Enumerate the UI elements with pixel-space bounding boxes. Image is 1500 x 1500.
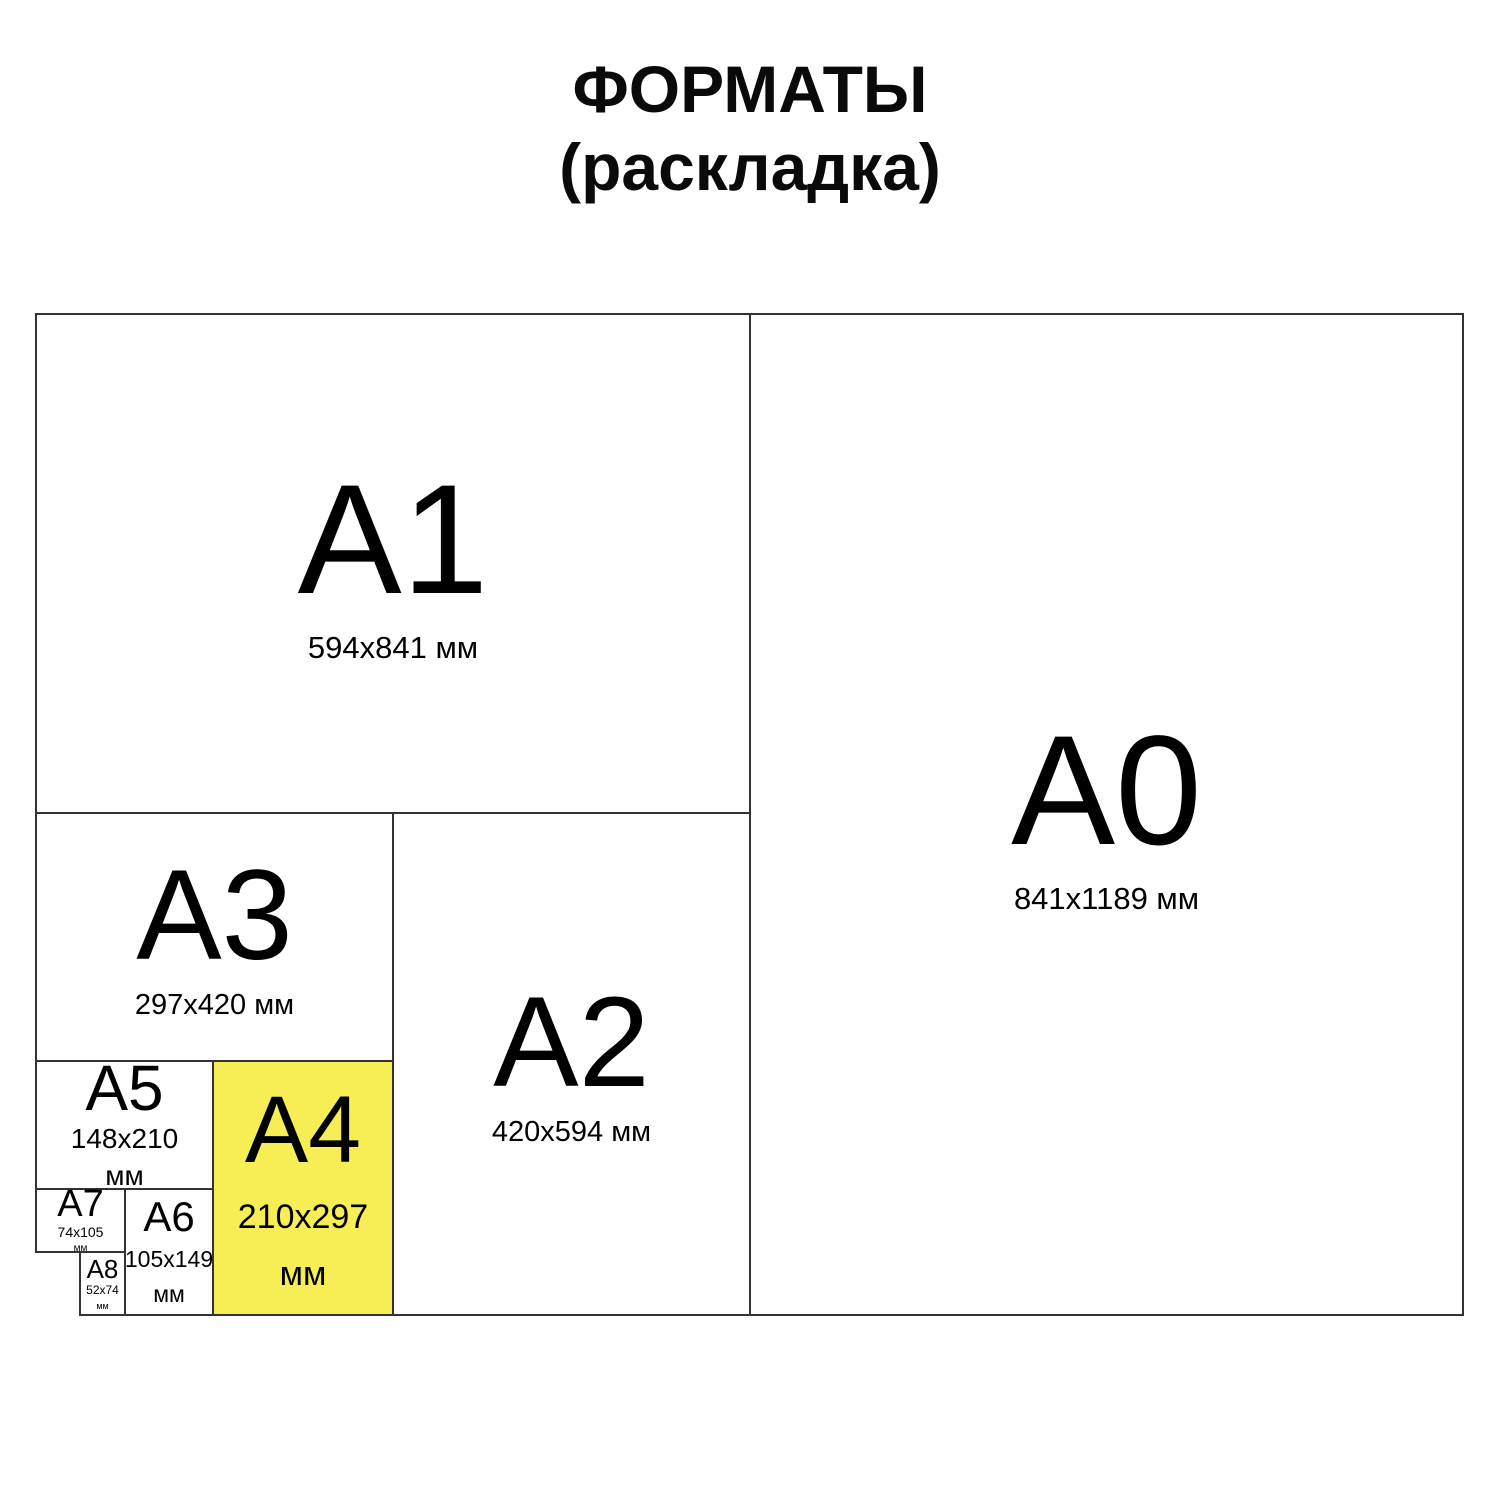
sheet-a7: A7 74x105 мм (35, 1188, 126, 1253)
sheet-a6-label: A6 (143, 1196, 194, 1238)
sheet-a2-dimensions: 420x594 мм (492, 1116, 651, 1149)
sheet-a8: A8 52x74 мм (79, 1251, 126, 1316)
sheet-a0-label: A0 (1011, 713, 1202, 869)
sheet-a4-label: A4 (245, 1083, 361, 1178)
sheet-a1-label: A1 (298, 462, 489, 618)
sheet-a2-label: A2 (493, 979, 650, 1107)
sheet-a3: A3 297x420 мм (35, 812, 394, 1062)
sheet-a4-dimensions-unit: мм (280, 1255, 327, 1294)
sheet-a5-label: A5 (85, 1058, 163, 1119)
sheet-a3-dimensions: 297x420 мм (135, 989, 294, 1022)
sheet-a1: A1 594x841 мм (35, 313, 751, 814)
sheet-a5: A5 148x210 мм (35, 1060, 214, 1190)
sheet-a6: A6 105x149 мм (124, 1188, 214, 1316)
sheet-a2: A2 420x594 мм (392, 812, 751, 1316)
sheet-a3-label: A3 (136, 852, 293, 980)
sheet-a8-dimensions: 52x74 (86, 1283, 119, 1297)
sheet-a8-dimensions-unit: мм (96, 1301, 108, 1311)
diagram-title: ФОРМАТЫ (раскладка) (0, 50, 1500, 206)
sheet-a7-label: A7 (57, 1187, 103, 1221)
sheet-a6-dimensions: 105x149 (125, 1246, 213, 1273)
sheet-a1-dimensions: 594x841 мм (308, 630, 478, 666)
sheet-a0: A0 841x1189 мм (749, 313, 1464, 1316)
sheet-a0-dimensions: 841x1189 мм (1014, 881, 1199, 917)
sheet-a6-dimensions-unit: мм (153, 1281, 185, 1308)
title-line-1: ФОРМАТЫ (0, 50, 1500, 128)
sheet-a4-dimensions: 210x297 (238, 1198, 368, 1237)
sheet-a8-label: A8 (87, 1256, 119, 1282)
title-line-2: (раскладка) (0, 128, 1500, 206)
paper-formats-diagram: ФОРМАТЫ (раскладка) A0 841x1189 мм A1 59… (0, 0, 1500, 1500)
sheet-a4-highlighted: A4 210x297 мм (212, 1060, 394, 1316)
sheet-a7-dimensions: 74x105 (58, 1224, 104, 1240)
sheet-a5-dimensions: 148x210 (71, 1123, 178, 1155)
